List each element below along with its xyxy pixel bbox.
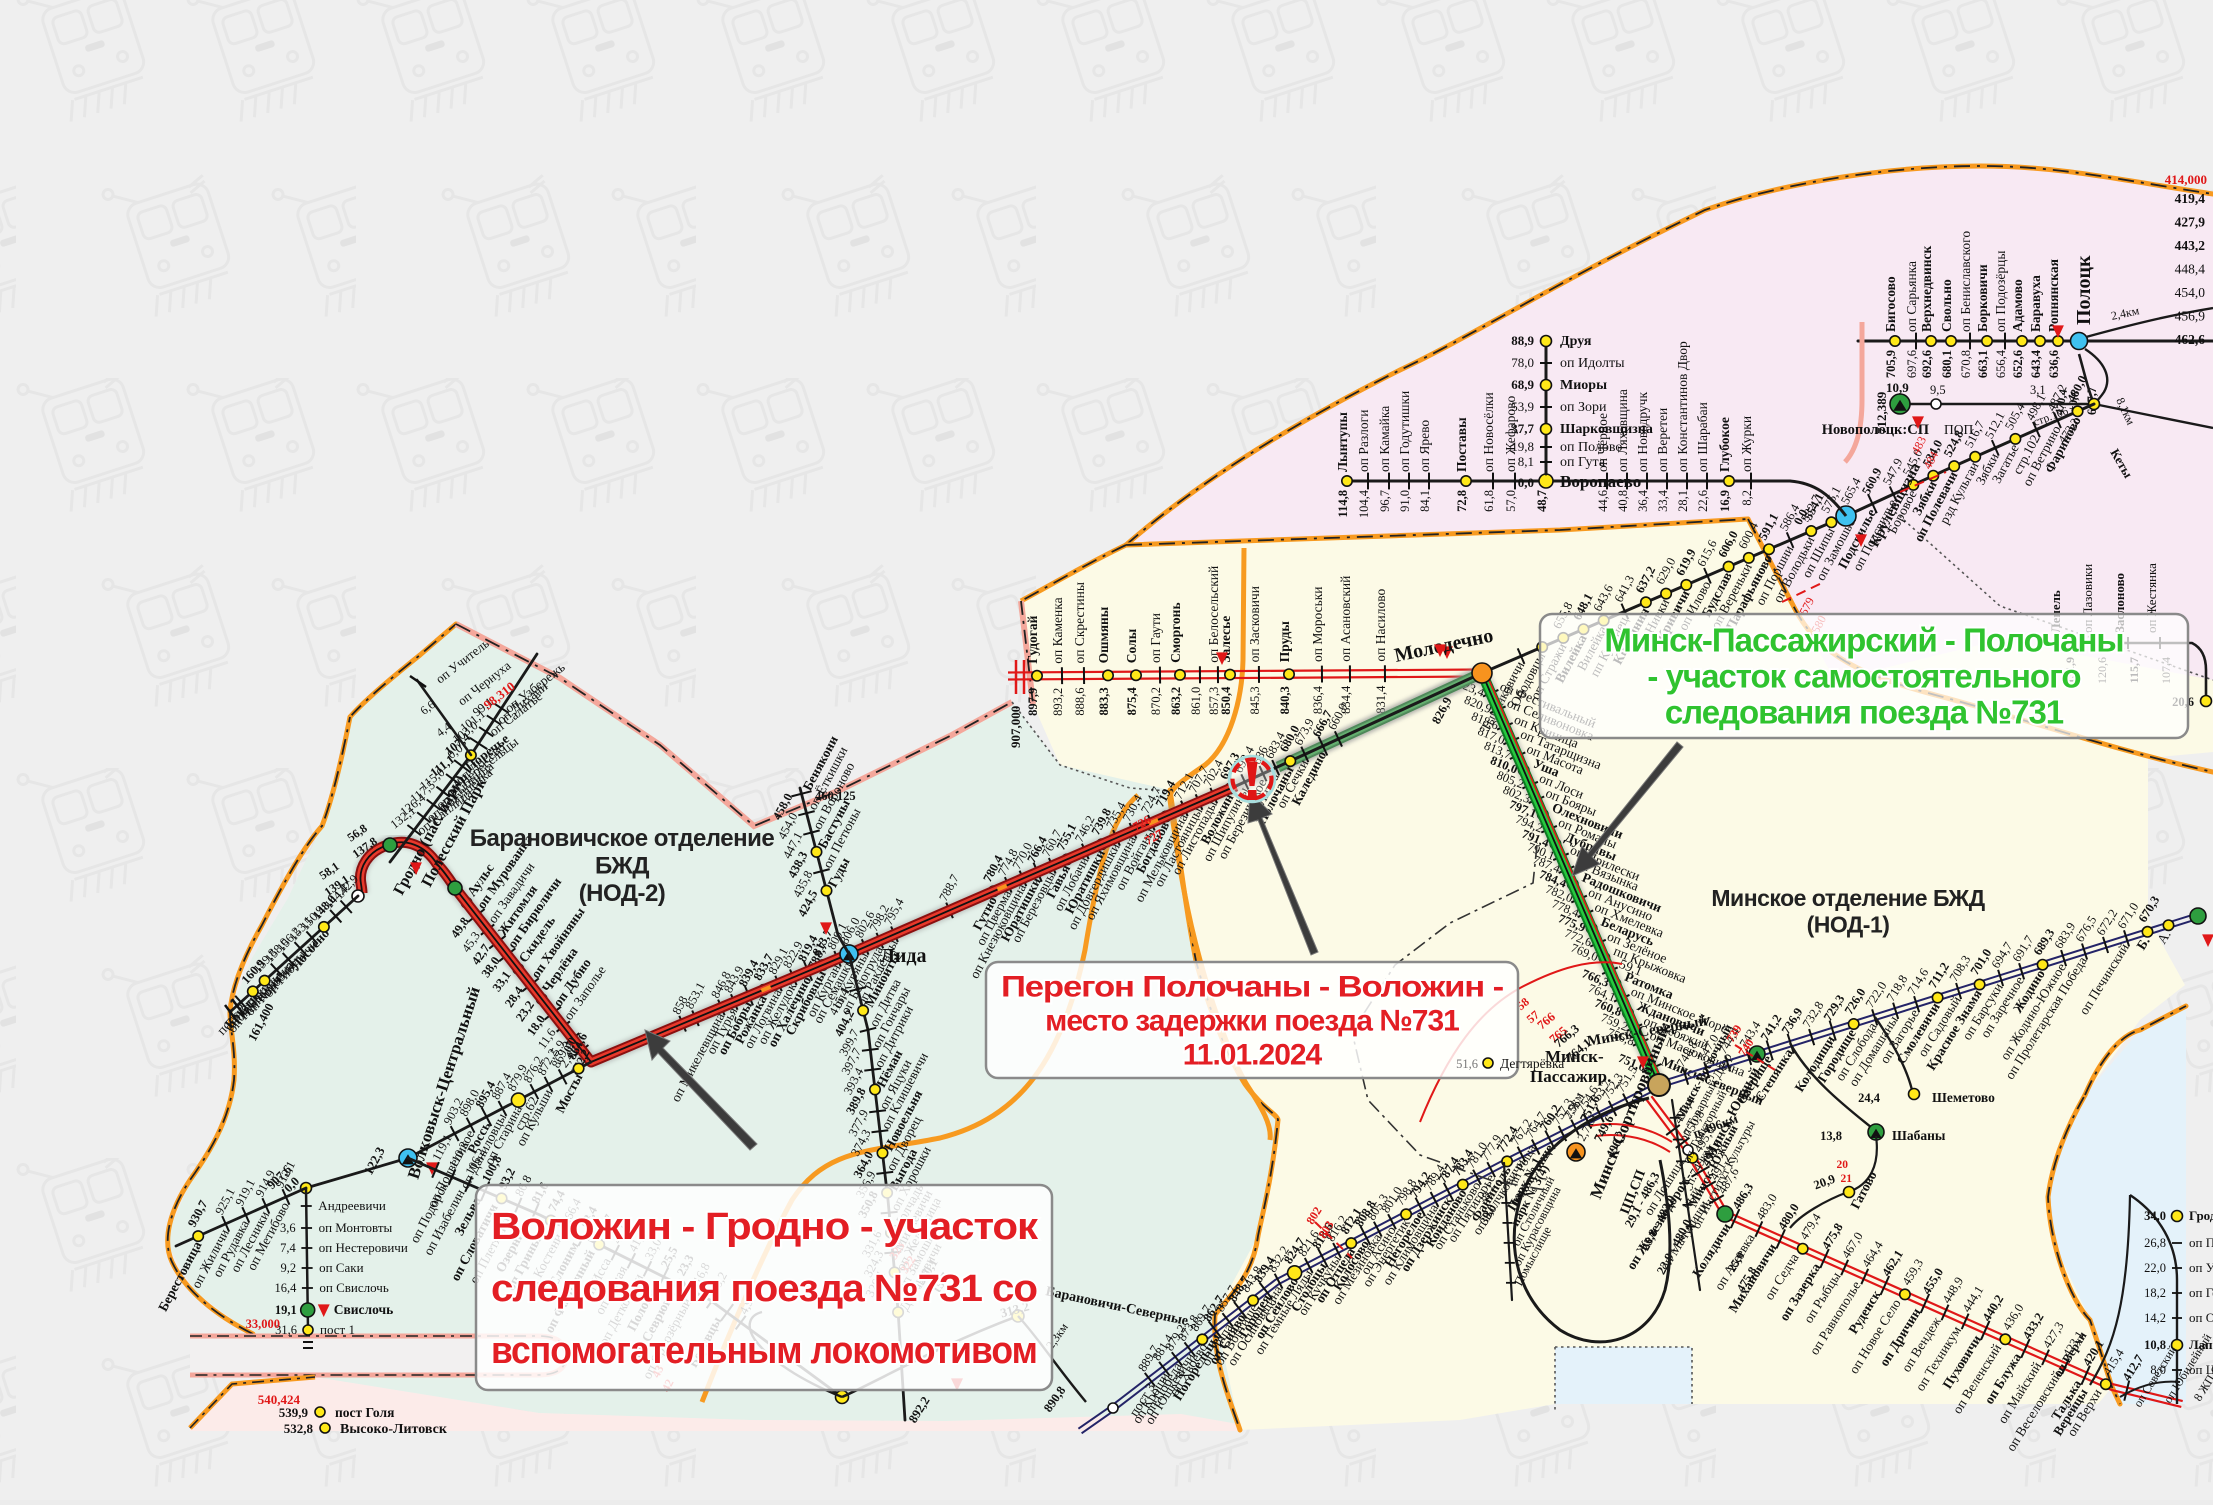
svg-text:оп Гаути: оп Гаути: [1148, 613, 1163, 663]
svg-text:427,9: 427,9: [2175, 215, 2206, 230]
svg-text:44,6: 44,6: [1596, 490, 1610, 512]
svg-text:Воложин - Гродно - участок: Воложин - Гродно - участок: [491, 1206, 1039, 1248]
svg-text:оп Веретеи: оп Веретеи: [1655, 408, 1670, 472]
svg-text:61,8: 61,8: [1482, 490, 1496, 512]
svg-text:Сморгонь: Сморгонь: [1168, 602, 1183, 663]
svg-text:907,000: 907,000: [1008, 706, 1023, 748]
svg-text:следования поезда №731: следования поезда №731: [1665, 694, 2064, 731]
svg-text:19,1: 19,1: [275, 1303, 297, 1317]
svg-text:оп Засковичи: оп Засковичи: [1247, 586, 1262, 662]
svg-text:14,2: 14,2: [2144, 1311, 2166, 1325]
svg-text:Адамово: Адамово: [2010, 279, 2025, 332]
svg-text:БЖД: БЖД: [595, 853, 649, 880]
svg-text:24,4: 24,4: [1858, 1091, 1881, 1105]
svg-text:3,6: 3,6: [280, 1221, 296, 1235]
svg-text:оп Гута: оп Гута: [1560, 455, 1606, 470]
svg-text:оп Нестеровичи: оп Нестеровичи: [319, 1240, 408, 1255]
svg-text:33,4: 33,4: [1656, 489, 1670, 512]
svg-text:Глубокое: Глубокое: [1717, 417, 1732, 472]
svg-text:11.01.2024: 11.01.2024: [1183, 1039, 1323, 1072]
svg-text:8,2: 8,2: [1740, 490, 1754, 506]
svg-text:448,4: 448,4: [2175, 262, 2206, 277]
svg-text:оп Зори: оп Зори: [1560, 400, 1607, 415]
svg-text:462,6: 462,6: [2175, 332, 2206, 347]
svg-text:Свислочь: Свислочь: [334, 1302, 394, 1317]
svg-text:вспомогательным локомотивом: вспомогательным локомотивом: [491, 1330, 1037, 1372]
svg-text:883,3: 883,3: [1097, 687, 1111, 715]
svg-text:Барановичское отделение: Барановичское отделение: [470, 825, 775, 852]
svg-text:53,9: 53,9: [1511, 399, 1534, 414]
svg-text:Миоры: Миоры: [1560, 378, 1607, 393]
svg-text:оп Уборки: оп Уборки: [2189, 1260, 2213, 1275]
svg-text:84,1: 84,1: [1418, 490, 1432, 512]
svg-text:414,000: 414,000: [2165, 172, 2207, 187]
svg-text:оп Саки: оп Саки: [319, 1260, 363, 1275]
svg-text:28,1: 28,1: [1676, 490, 1690, 512]
svg-text:705,9: 705,9: [1884, 350, 1898, 378]
svg-text:19,8: 19,8: [1511, 439, 1534, 454]
svg-text:37,7: 37,7: [1511, 421, 1534, 436]
svg-text:(НОД-1): (НОД-1): [1807, 911, 1890, 937]
svg-text:оп Шарабаи: оп Шарабаи: [1695, 402, 1710, 472]
svg-text:Андреевичи: Андреевичи: [318, 1198, 386, 1213]
svg-text:Новополоцк:СП: Новополоцк:СП: [1822, 422, 1929, 438]
svg-text:Бигосово: Бигосово: [1883, 276, 1898, 332]
svg-text:9,5: 9,5: [1930, 383, 1946, 397]
svg-text:692,6: 692,6: [1920, 350, 1934, 378]
svg-text:96,7: 96,7: [1378, 490, 1392, 512]
svg-text:888,6: 888,6: [1073, 688, 1087, 716]
svg-text:Шабаны: Шабаны: [1892, 1128, 1946, 1143]
svg-text:- участок самостоятельного: - участок самостоятельного: [1647, 658, 2080, 695]
svg-text:Гудогай: Гудогай: [1025, 615, 1040, 663]
svg-text:оп Константинов Двор: оп Константинов Двор: [1675, 341, 1690, 472]
svg-text:456,9: 456,9: [2175, 309, 2206, 324]
svg-text:оп Каменка: оп Каменка: [1050, 597, 1065, 663]
svg-text:оп Разлоги: оп Разлоги: [1356, 410, 1371, 472]
svg-text:Полоцк: Полоцк: [2073, 255, 2095, 325]
svg-text:7,4: 7,4: [280, 1241, 296, 1255]
svg-text:Ропнянская: Ропнянская: [2046, 259, 2061, 332]
svg-text:532,8: 532,8: [284, 1421, 314, 1436]
svg-text:36,4: 36,4: [1636, 489, 1650, 512]
svg-text:48,7: 48,7: [1535, 490, 1549, 512]
svg-text:40,8: 40,8: [1616, 490, 1630, 512]
svg-text:443,2: 443,2: [2175, 238, 2206, 253]
svg-text:10,9: 10,9: [1886, 380, 1909, 395]
svg-text:643,4: 643,4: [2029, 349, 2043, 378]
svg-text:Гродзянка: Гродзянка: [2189, 1208, 2213, 1223]
svg-text:18,2: 18,2: [2144, 1286, 2166, 1300]
svg-text:оп Скрестины: оп Скрестины: [1072, 582, 1087, 663]
svg-text:(НОД-2): (НОД-2): [579, 880, 666, 907]
svg-text:539,9: 539,9: [279, 1405, 309, 1420]
svg-text:оп Бениславского: оп Бениславского: [1958, 231, 1973, 332]
svg-text:Шеметово: Шеметово: [1932, 1090, 1995, 1105]
svg-text:26,8: 26,8: [2144, 1236, 2166, 1250]
svg-text:Борковичи: Борковичи: [1975, 264, 1990, 332]
svg-text:91,0: 91,0: [1398, 490, 1412, 512]
svg-text:16,4: 16,4: [275, 1281, 298, 1295]
svg-text:663,1: 663,1: [1976, 350, 1990, 378]
svg-text:22,0: 22,0: [2144, 1261, 2166, 1275]
svg-text:460,125: 460,125: [815, 789, 856, 803]
svg-text:оп Полово: оп Полово: [1560, 440, 1622, 455]
svg-text:оп Подозёрцы: оп Подозёрцы: [1993, 251, 2008, 332]
svg-text:оп Новосёлки: оп Новосёлки: [1481, 392, 1496, 472]
svg-text:697,6: 697,6: [1905, 350, 1919, 378]
svg-text:897,9: 897,9: [1026, 688, 1040, 716]
svg-text:419,4: 419,4: [2175, 191, 2206, 206]
svg-text:оп Годутишки: оп Годутишки: [1397, 391, 1412, 472]
svg-text:Ошмяны: Ошмяны: [1096, 606, 1111, 663]
svg-text:20: 20: [1837, 1159, 1849, 1171]
svg-text:34,0: 34,0: [2144, 1209, 2166, 1223]
svg-text:0,0: 0,0: [1518, 475, 1534, 490]
svg-text:следования поезда №731 со: следования поезда №731 со: [491, 1268, 1037, 1310]
svg-text:оп Погорелое: оп Погорелое: [2189, 1235, 2213, 1250]
svg-text:13,8: 13,8: [1820, 1129, 1842, 1143]
svg-text:оп Гомонов...: оп Гомонов...: [2189, 1285, 2213, 1300]
svg-text:Перегон Полочаны - Воложин -: Перегон Полочаны - Воложин -: [1001, 971, 1503, 1004]
svg-text:51,6: 51,6: [1456, 1057, 1478, 1071]
svg-text:656,4: 656,4: [1994, 349, 2008, 378]
svg-text:Поставы: Поставы: [1454, 417, 1469, 472]
svg-text:Свольно: Свольно: [1939, 279, 1954, 332]
svg-text:место задержки поезда №731: место задержки поезда №731: [1045, 1005, 1459, 1038]
svg-text:Дегтярёвка: Дегтярёвка: [1500, 1056, 1564, 1071]
svg-text:850,4: 850,4: [1219, 686, 1233, 715]
svg-text:78,0: 78,0: [1511, 355, 1534, 370]
svg-text:Высоко-Литовск: Высоко-Литовск: [340, 1422, 448, 1437]
svg-text:875,4: 875,4: [1125, 686, 1139, 715]
svg-text:21: 21: [1841, 1173, 1853, 1185]
svg-text:Баравуха: Баравуха: [2028, 275, 2043, 332]
svg-text:Пруды: Пруды: [1277, 621, 1292, 663]
svg-text:оп Сарьянка: оп Сарьянка: [1904, 261, 1919, 332]
svg-text:636,6: 636,6: [2047, 350, 2061, 378]
svg-text:Друя: Друя: [1560, 334, 1592, 349]
svg-text:652,6: 652,6: [2011, 350, 2025, 378]
svg-text:863,2: 863,2: [1169, 687, 1183, 715]
svg-text:оп Асановский: оп Асановский: [1338, 576, 1353, 662]
svg-text:оп Камайка: оп Камайка: [1377, 406, 1392, 472]
svg-text:оп Журки: оп Журки: [1739, 416, 1754, 472]
svg-text:оп Свислочь: оп Свислочь: [319, 1280, 388, 1295]
svg-text:680,1: 680,1: [1940, 350, 1954, 378]
svg-text:Шарковщизна: Шарковщизна: [1560, 422, 1653, 437]
svg-text:88,9: 88,9: [1511, 333, 1534, 348]
svg-text:пост Голя: пост Голя: [335, 1405, 394, 1420]
svg-text:Верхнедвинск: Верхнедвинск: [1919, 245, 1934, 332]
svg-text:16,9: 16,9: [1718, 490, 1732, 512]
svg-text:57,0: 57,0: [1504, 490, 1518, 512]
svg-text:оп Осово: оп Осово: [2189, 1310, 2213, 1325]
svg-text:33,000: 33,000: [246, 1317, 280, 1331]
svg-text:893,2: 893,2: [1051, 688, 1065, 716]
svg-text:68,9: 68,9: [1511, 377, 1534, 392]
svg-text:840,3: 840,3: [1278, 686, 1292, 714]
svg-text:22,6: 22,6: [1696, 490, 1710, 512]
svg-text:оп Идолты: оп Идолты: [1560, 356, 1625, 371]
svg-text:870,2: 870,2: [1149, 687, 1163, 715]
svg-text:670,8: 670,8: [1959, 350, 1973, 378]
svg-text:Лынтупы: Лынтупы: [1335, 412, 1350, 472]
svg-text:оп Мороськи: оп Мороськи: [1310, 586, 1325, 662]
svg-text:оп Ярево: оп Ярево: [1417, 420, 1432, 472]
svg-text:9,2: 9,2: [280, 1261, 296, 1275]
svg-text:Солы: Солы: [1124, 628, 1139, 663]
svg-text:оп Монтовты: оп Монтовты: [319, 1220, 393, 1235]
svg-text:8,1: 8,1: [1518, 454, 1534, 469]
svg-text:845,3: 845,3: [1248, 686, 1262, 714]
svg-text:454,0: 454,0: [2175, 285, 2206, 300]
svg-text:72,8: 72,8: [1455, 490, 1469, 512]
svg-text:Минск-Пассажирский - Полочаны: Минск-Пассажирский - Полочаны: [1604, 622, 2123, 659]
svg-text:104,4: 104,4: [1357, 489, 1371, 518]
svg-text:Минское отделение БЖД: Минское отделение БЖД: [1711, 885, 1984, 911]
svg-text:831,4: 831,4: [1374, 685, 1388, 714]
svg-text:114,8: 114,8: [1336, 490, 1350, 517]
svg-text:861,0: 861,0: [1189, 687, 1203, 715]
svg-text:оп Насилово: оп Насилово: [1373, 589, 1388, 662]
svg-text:пост 1: пост 1: [320, 1322, 355, 1337]
svg-text:Воропаево: Воропаево: [1560, 472, 1641, 491]
